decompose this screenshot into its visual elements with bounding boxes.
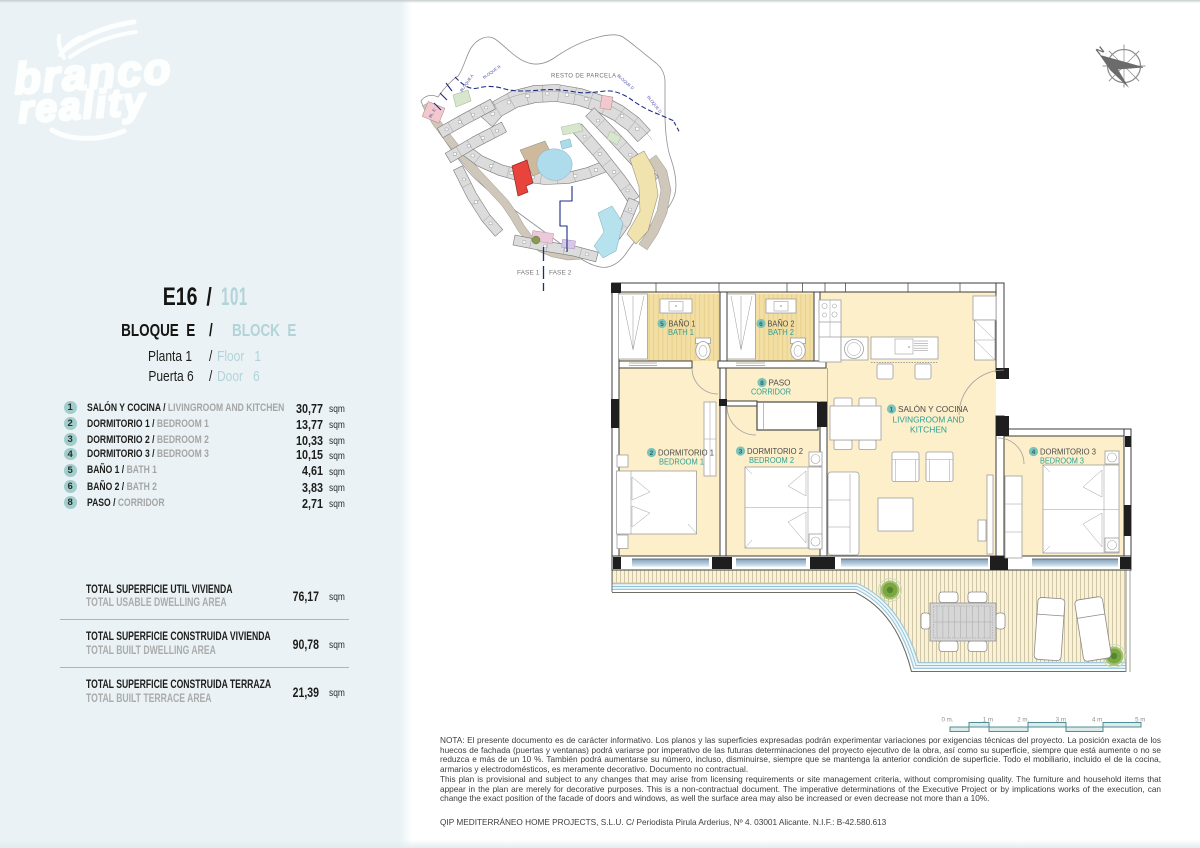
- svg-text:BAÑO 2: BAÑO 2: [768, 319, 796, 328]
- svg-text:N: N: [1094, 45, 1106, 58]
- svg-text:LIVINGROOM AND: LIVINGROOM AND: [893, 416, 965, 425]
- svg-text:DORMITORIO 1: DORMITORIO 1: [658, 448, 715, 457]
- svg-text:BATH 2: BATH 2: [768, 328, 795, 337]
- svg-text:1: 1: [890, 406, 894, 413]
- svg-text:1 m: 1 m: [983, 717, 993, 724]
- svg-text:8: 8: [760, 380, 764, 387]
- svg-text:5 m: 5 m: [1135, 717, 1145, 724]
- svg-text:BEDROOM 1: BEDROOM 1: [659, 458, 705, 467]
- svg-text:3 m: 3 m: [1056, 717, 1066, 724]
- svg-text:4 m: 4 m: [1092, 717, 1102, 724]
- svg-text:FASE 1: FASE 1: [517, 270, 540, 277]
- svg-text:PASO: PASO: [769, 378, 791, 387]
- svg-text:KITCHEN: KITCHEN: [910, 426, 947, 435]
- svg-text:BATH 1: BATH 1: [668, 328, 695, 337]
- svg-text:0 m.: 0 m.: [942, 717, 954, 724]
- svg-text:2 m.: 2 m.: [1017, 717, 1029, 724]
- svg-text:3: 3: [739, 448, 743, 455]
- svg-text:6: 6: [759, 321, 763, 328]
- svg-text:BEDROOM 2: BEDROOM 2: [749, 456, 795, 465]
- svg-text:2: 2: [650, 450, 654, 457]
- svg-text:5: 5: [660, 321, 664, 328]
- svg-text:DORMITORIO 2: DORMITORIO 2: [747, 447, 804, 456]
- svg-text:FASE 2: FASE 2: [549, 270, 572, 277]
- svg-text:SALÓN Y COCINA: SALÓN Y COCINA: [898, 405, 969, 414]
- svg-text:RESTO DE PARCELA: RESTO DE PARCELA: [551, 74, 616, 80]
- svg-text:BEDROOM 3: BEDROOM 3: [1040, 457, 1084, 466]
- svg-text:DORMITORIO 3: DORMITORIO 3: [1040, 447, 1097, 456]
- svg-text:4: 4: [1032, 449, 1036, 456]
- svg-text:CORRIDOR: CORRIDOR: [751, 388, 791, 397]
- svg-text:BAÑO 1: BAÑO 1: [669, 319, 697, 328]
